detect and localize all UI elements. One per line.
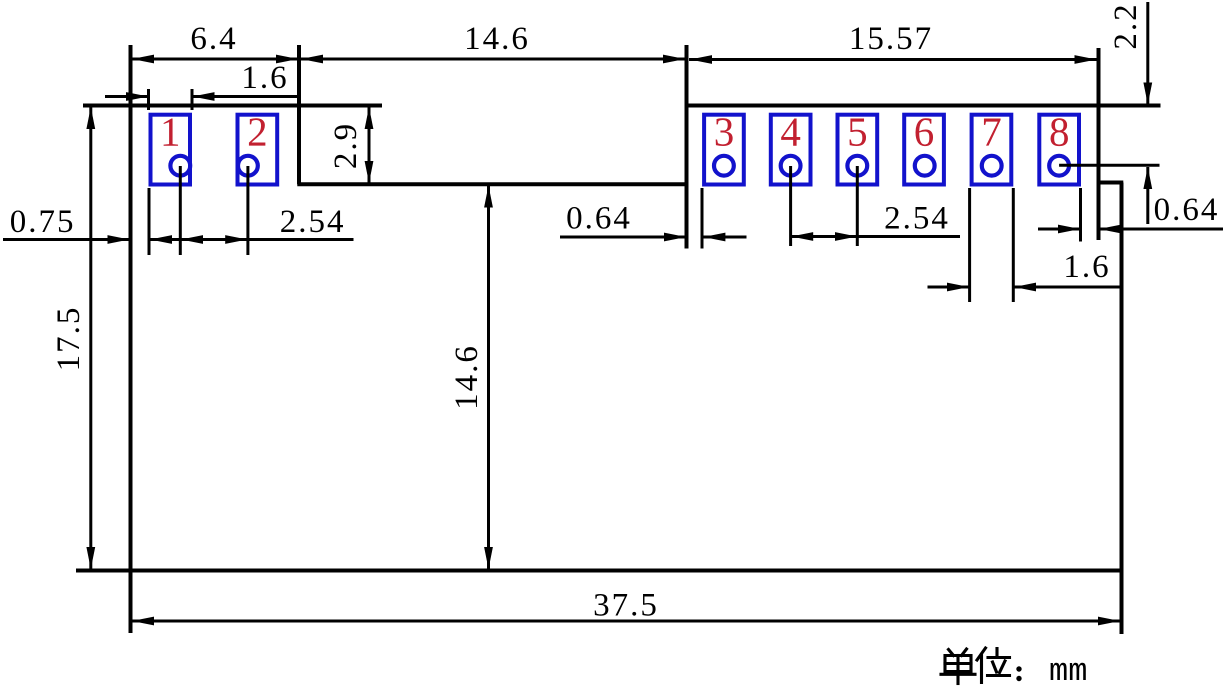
svg-text:15.57: 15.57 — [849, 21, 933, 57]
svg-text:2.54: 2.54 — [884, 201, 950, 237]
svg-text:14.6: 14.6 — [449, 344, 485, 410]
svg-text:5: 5 — [847, 108, 868, 154]
svg-text:0.64: 0.64 — [1154, 192, 1220, 228]
svg-text:17.5: 17.5 — [51, 306, 87, 372]
svg-text:0.75: 0.75 — [10, 204, 76, 240]
svg-text:8: 8 — [1049, 108, 1070, 154]
svg-text:6: 6 — [914, 108, 935, 154]
svg-text:14.6: 14.6 — [464, 21, 530, 57]
svg-text:0.64: 0.64 — [566, 201, 632, 237]
svg-text:1.6: 1.6 — [241, 60, 288, 96]
svg-text:37.5: 37.5 — [593, 588, 659, 624]
svg-text:4: 4 — [780, 108, 801, 154]
svg-text:2.54: 2.54 — [280, 204, 346, 240]
svg-text:mm: mm — [1049, 653, 1087, 690]
svg-text:1.6: 1.6 — [1063, 249, 1110, 285]
svg-text:2: 2 — [247, 108, 268, 154]
svg-text:6.4: 6.4 — [190, 21, 237, 57]
svg-text:7: 7 — [981, 108, 1002, 154]
svg-text:2.9: 2.9 — [328, 122, 364, 169]
svg-text:3: 3 — [714, 108, 735, 154]
svg-text:1: 1 — [160, 108, 181, 154]
svg-text:2.2: 2.2 — [1108, 2, 1144, 49]
